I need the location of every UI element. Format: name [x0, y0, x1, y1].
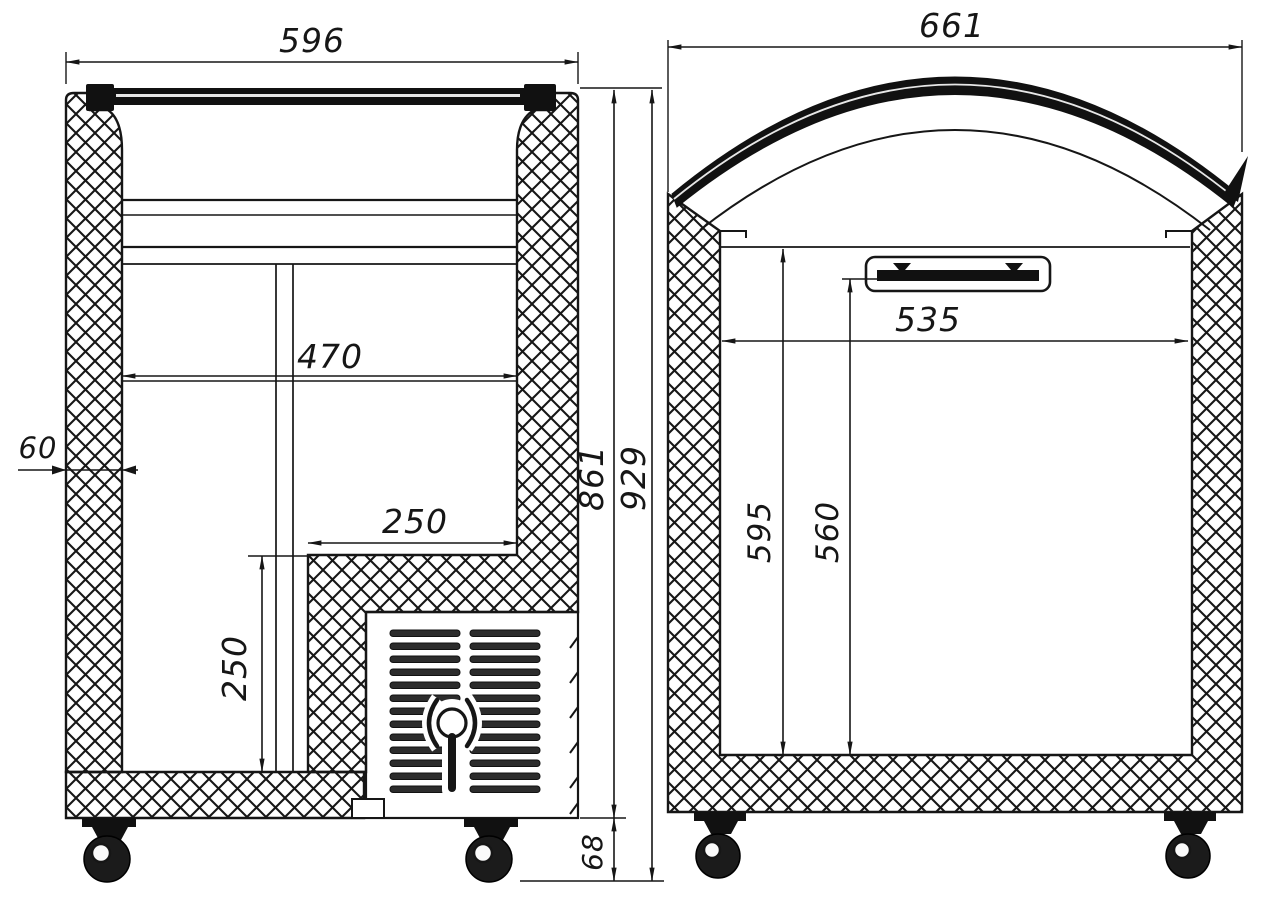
dim-label-opening-width: 535 — [895, 300, 961, 339]
technical-drawing-canvas: 596 60 470 250 250 861 — [0, 0, 1280, 903]
left-wall-insulation — [66, 93, 122, 772]
caster-front-left — [694, 812, 746, 878]
corner-flange-left — [720, 231, 746, 238]
dimension-535: 535 — [722, 300, 1188, 341]
caster-front-right — [1164, 812, 1216, 878]
vent-slat — [390, 669, 460, 676]
vent-slat — [470, 643, 540, 650]
dim-label-body-height: 861 — [572, 445, 611, 511]
caster-right — [464, 818, 518, 882]
drawing-stage: 596 60 470 250 250 861 — [0, 0, 1280, 903]
vent-slat — [390, 682, 460, 689]
vent-slat — [390, 643, 460, 650]
vent-slat — [470, 760, 540, 767]
vent-slat — [390, 656, 460, 663]
side-section-view: 596 60 470 250 250 861 — [18, 21, 664, 882]
dim-label-interior-height-rear: 595 — [742, 501, 778, 563]
vent-slat — [470, 786, 540, 793]
vent-slat — [470, 669, 540, 676]
vent-slat — [470, 773, 540, 780]
vent-slat — [470, 695, 540, 702]
dim-label-interior-height-front: 560 — [810, 501, 846, 563]
caster-left — [82, 818, 136, 882]
dimension-596: 596 — [66, 21, 578, 84]
dim-label-caster-height: 68 — [576, 833, 609, 871]
vent-slat — [470, 682, 540, 689]
dim-label-wall-thickness: 60 — [19, 431, 58, 465]
dimension-560: 560 — [810, 279, 880, 755]
dimension-595: 595 — [742, 249, 783, 755]
dim-label-overall-width-right: 661 — [919, 6, 985, 45]
dim-label-overall-height: 929 — [614, 445, 653, 511]
lid-end-cap-left — [86, 84, 114, 111]
dimension-250-height: 250 — [215, 556, 308, 772]
vent-slat — [470, 656, 540, 663]
dim-label-niche-width: 250 — [382, 502, 448, 541]
panel-tick-marks — [570, 637, 578, 814]
lid-edge-tip — [1224, 156, 1248, 202]
compartment-notch — [352, 799, 384, 818]
dim-label-niche-height: 250 — [215, 635, 254, 701]
dim-label-interior-width: 470 — [297, 337, 363, 376]
vent-slat — [470, 747, 540, 754]
lid-end-cap-right — [524, 84, 556, 111]
lid-handle — [866, 257, 1050, 291]
dimension-470: 470 — [122, 337, 517, 376]
front-section-view: 661 535 595 560 — [668, 6, 1248, 878]
inner-rim-arc — [700, 130, 1210, 230]
lid-glass-gap-line — [116, 94, 520, 97]
vent-slat — [470, 734, 540, 741]
corner-flange-right — [1166, 231, 1192, 238]
vent-slat — [470, 630, 540, 637]
floor-insulation — [66, 772, 364, 818]
dimension-661: 661 — [668, 6, 1242, 192]
vent-slat — [390, 630, 460, 637]
dim-label-overall-width-left: 596 — [279, 21, 345, 60]
dimension-250-width: 250 — [308, 502, 517, 543]
